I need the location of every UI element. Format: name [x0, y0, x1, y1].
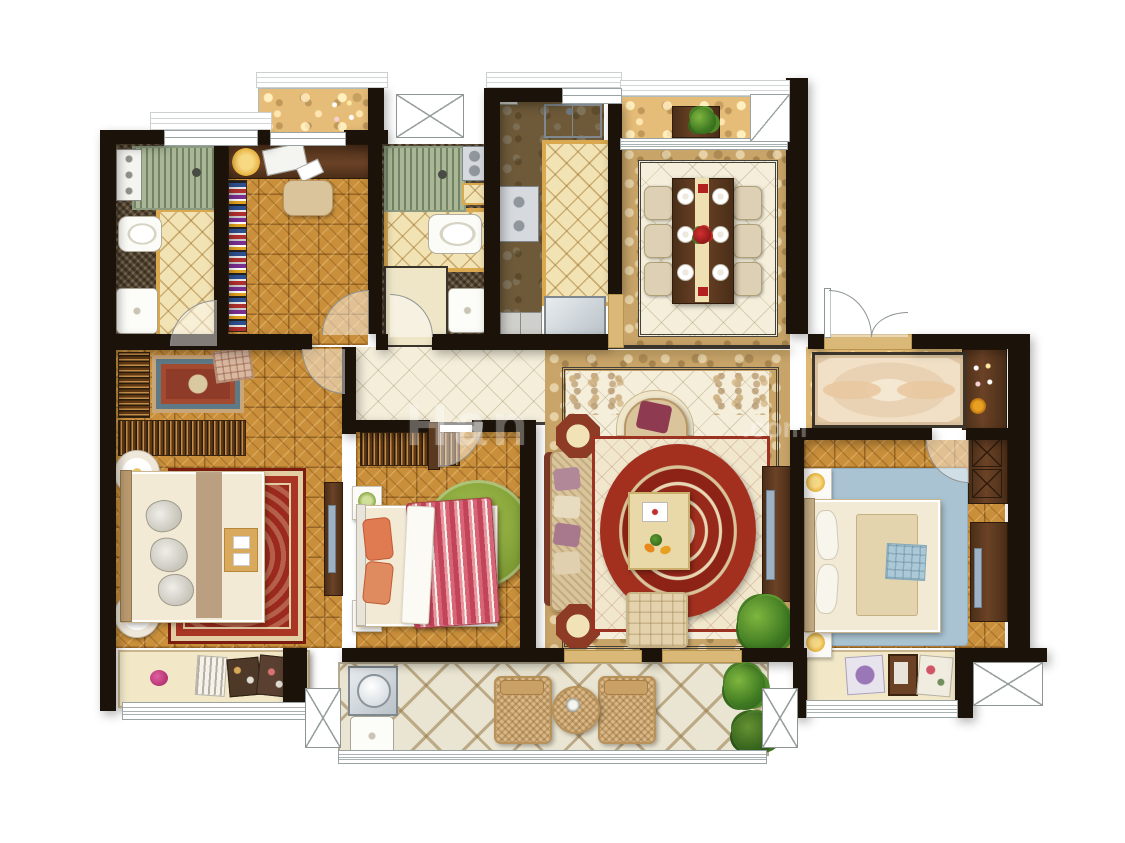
window-balcony-rail	[338, 750, 767, 764]
wall-bed3-top-post	[966, 428, 1008, 440]
balcony-threshold	[564, 650, 642, 663]
window-study-balcony	[270, 132, 346, 146]
wall-top-left	[100, 130, 164, 144]
wall-left-outer	[100, 130, 116, 657]
wall-post	[376, 334, 388, 350]
wall-kitchen-dining	[608, 102, 622, 294]
kitchen-threshold	[608, 294, 624, 348]
wall-bed3-top	[800, 428, 932, 440]
balcony-threshold	[662, 650, 742, 663]
window-kitchen	[562, 88, 622, 104]
wall-kitchen-bottom	[484, 334, 608, 350]
wall-living-bottom-b	[640, 648, 662, 662]
wall-post-bay-balcony	[283, 648, 307, 704]
ac-platform-east	[973, 662, 1043, 706]
wall-bed2-top	[356, 420, 430, 432]
dining-living-trim	[608, 345, 790, 349]
exterior-sill	[256, 72, 388, 88]
ac-platform-balcony-left	[305, 688, 341, 748]
wall-bed2-bottom	[342, 648, 546, 662]
wall-post-sw	[100, 641, 116, 711]
corner-window-dining	[750, 94, 790, 142]
wall-living-bed3	[790, 430, 804, 650]
window-master-bay	[122, 702, 306, 720]
wall-living-bottom-a	[546, 648, 564, 662]
ac-platform-top	[396, 94, 464, 138]
exterior-sill	[486, 72, 622, 88]
window-bathroom-1	[164, 130, 258, 146]
floor-plan-canvas: Han .com	[0, 0, 1125, 843]
wall-bed2-right	[520, 420, 536, 648]
exterior-sill	[150, 112, 272, 130]
wall-post-top	[368, 86, 384, 144]
wall-right-outer	[1008, 334, 1030, 650]
wall-study-bath2	[368, 144, 382, 334]
wall-kitchen-top	[484, 88, 562, 102]
window-bedroom-3-bay	[806, 700, 958, 718]
wall-kitchen-left	[484, 88, 500, 345]
ac-platform-balcony-right	[762, 688, 798, 748]
wall-entry-post	[808, 334, 824, 349]
wall-xbox-top	[955, 648, 1047, 662]
wall-bath2-bottom	[432, 334, 486, 350]
